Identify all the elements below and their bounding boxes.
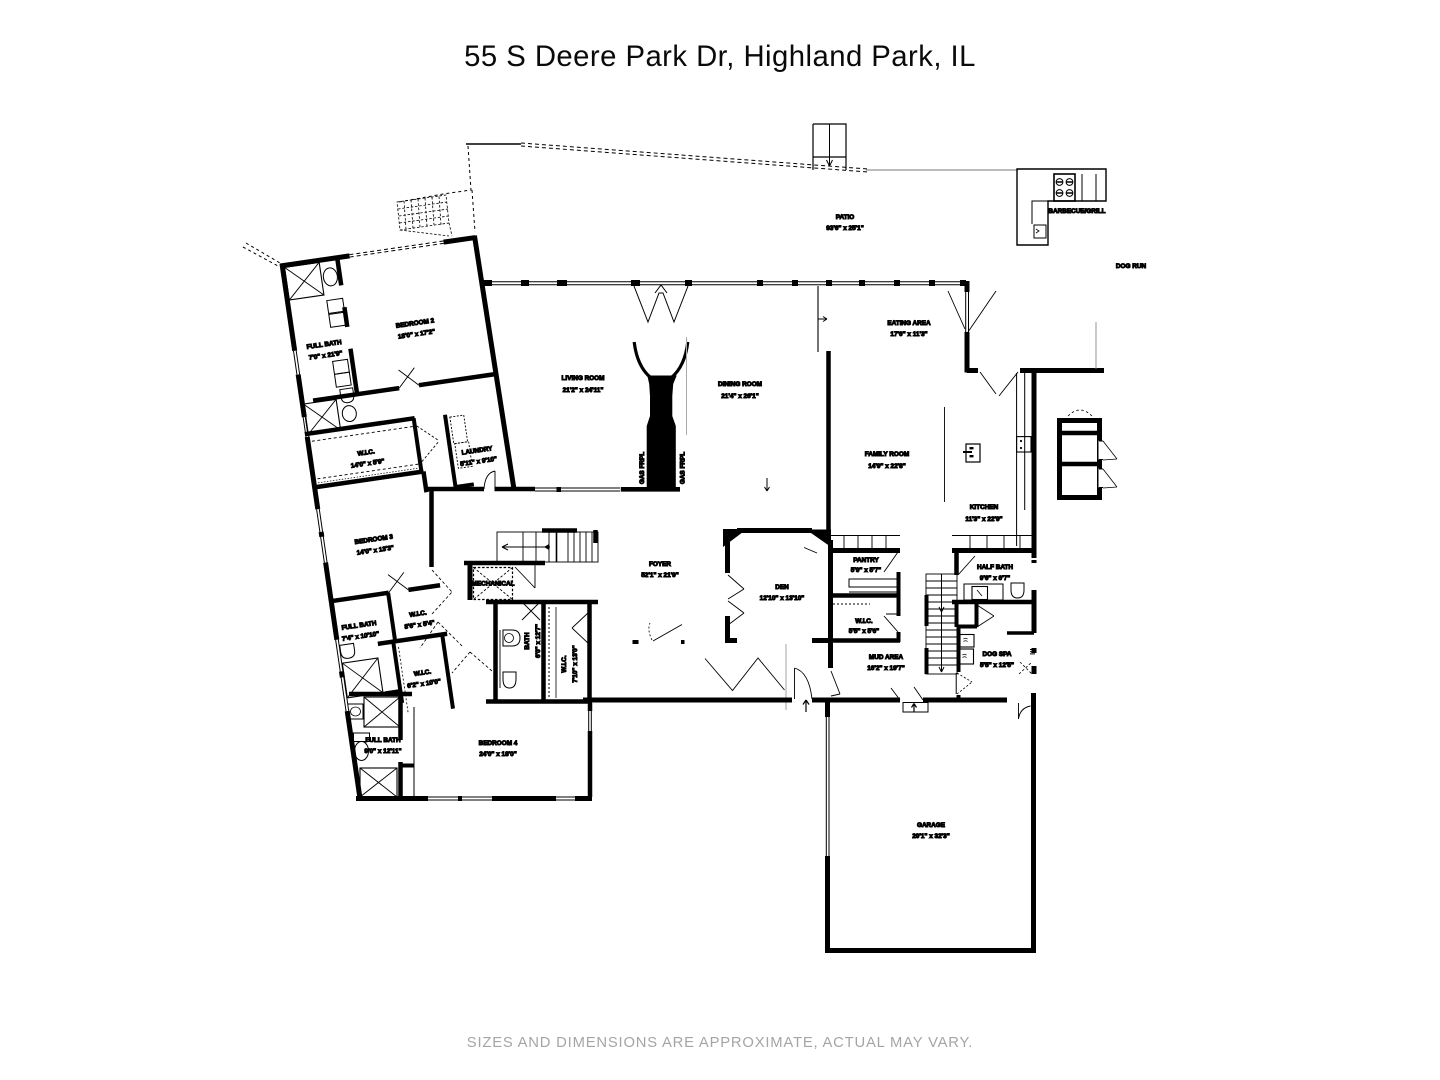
svg-text:GARAGE: GARAGE [917, 822, 946, 829]
svg-text:93'6" x 25'1": 93'6" x 25'1" [826, 225, 864, 232]
svg-text:MECHANICAL: MECHANICAL [472, 581, 515, 588]
svg-text:FULL BATH: FULL BATH [365, 737, 401, 744]
svg-text:KITCHEN: KITCHEN [970, 504, 999, 511]
svg-text:BATH: BATH [524, 632, 531, 650]
svg-text:BEDROOM 4: BEDROOM 4 [479, 740, 518, 747]
svg-text:SIZES AND DIMENSIONS ARE APPRO: SIZES AND DIMENSIONS ARE APPROXIMATE, AC… [467, 1035, 973, 1051]
svg-text:EATING AREA: EATING AREA [887, 320, 931, 327]
svg-text:5'5" x 5'6": 5'5" x 5'6" [849, 628, 879, 635]
svg-text:9'6" x 6'7": 9'6" x 6'7" [980, 575, 1010, 582]
svg-text:FOYER: FOYER [649, 561, 671, 568]
svg-text:29'1" x 32'3": 29'1" x 32'3" [912, 833, 950, 840]
svg-text:W.I.C.: W.I.C. [561, 655, 568, 673]
svg-text:17'6" x 11'3": 17'6" x 11'3" [890, 331, 927, 338]
svg-text:21'2" x 24'11": 21'2" x 24'11" [563, 387, 604, 394]
svg-text:21'4" x 26'1": 21'4" x 26'1" [721, 393, 759, 400]
svg-text:BARBECUE/GRILL: BARBECUE/GRILL [1048, 208, 1105, 215]
svg-text:12'10" x 13'10": 12'10" x 13'10" [760, 595, 805, 602]
svg-text:PANTRY: PANTRY [853, 557, 879, 564]
svg-text:W.I.C.: W.I.C. [855, 618, 873, 625]
svg-text:9'0" x 12'11": 9'0" x 12'11" [364, 748, 401, 755]
svg-text:LIVING ROOM: LIVING ROOM [562, 375, 605, 382]
svg-text:MUD AREA: MUD AREA [869, 654, 904, 661]
svg-text:52'1" x 21'9": 52'1" x 21'9" [641, 572, 679, 579]
svg-text:14'9" x 22'8": 14'9" x 22'8" [868, 463, 906, 470]
svg-text:24'0" x 18'0": 24'0" x 18'0" [479, 751, 517, 758]
svg-text:DEN: DEN [775, 584, 789, 591]
svg-text:GAS FRPL: GAS FRPL [680, 452, 687, 484]
svg-text:DOG SPA: DOG SPA [983, 651, 1012, 658]
svg-text:5'5" x 12'5": 5'5" x 12'5" [980, 662, 1014, 669]
svg-text:7'10" x 13'0": 7'10" x 13'0" [572, 645, 579, 683]
svg-text:DOG RUN: DOG RUN [1116, 263, 1147, 270]
svg-text:HALF BATH: HALF BATH [977, 564, 1013, 571]
svg-text:DINING ROOM: DINING ROOM [718, 381, 762, 388]
svg-text:PATIO: PATIO [836, 214, 855, 221]
svg-text:6'0" x 12'7": 6'0" x 12'7" [535, 624, 542, 658]
svg-text:16'2" x 19'7": 16'2" x 19'7" [867, 665, 905, 672]
svg-text:FAMILY ROOM: FAMILY ROOM [865, 451, 909, 458]
svg-text:11'3" x 22'9": 11'3" x 22'9" [965, 516, 1002, 523]
svg-text:55 S Deere Park Dr, Highland P: 55 S Deere Park Dr, Highland Park, IL [464, 40, 976, 73]
svg-text:5'9" x 5'7": 5'9" x 5'7" [851, 567, 881, 574]
svg-text:GAS FRPL: GAS FRPL [639, 452, 646, 484]
